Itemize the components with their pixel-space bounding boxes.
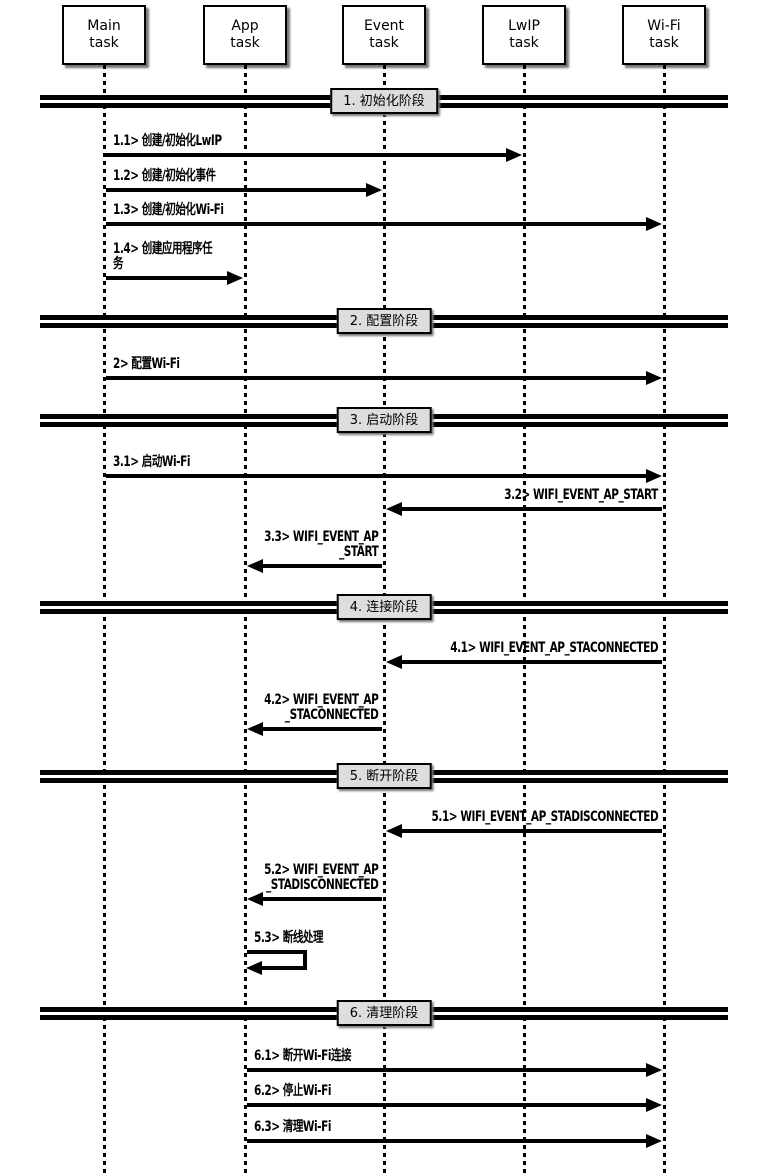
message-arrow-6.3 (247, 1139, 648, 1143)
message-arrowhead-3.2 (386, 502, 402, 516)
message-label-3.2: 3.2> WIFI_EVENT_AP_START (504, 488, 658, 503)
message-arrow-1.3 (106, 222, 648, 226)
phase-label-1: 1. 初始化阶段 (330, 88, 438, 114)
phase-label-6: 6. 清理阶段 (337, 1000, 432, 1026)
phase-label-2: 2. 配置阶段 (337, 308, 432, 334)
message-arrow-1.2 (106, 188, 368, 192)
message-label-1.2: 1.2> 创建/初始化事件 (113, 169, 216, 184)
actor-header-main: Main task (62, 5, 146, 65)
message-arrow-4.1 (400, 660, 662, 664)
message-arrowhead-1.3 (646, 217, 662, 231)
message-label-6.3: 6.3> 清理Wi-Fi (254, 1120, 331, 1135)
message-arrowhead-6.1 (646, 1063, 662, 1077)
message-label-3.1: 3.1> 启动Wi-Fi (113, 455, 190, 470)
message-arrow-5.3 (259, 966, 307, 970)
message-arrowhead-4.1 (386, 655, 402, 669)
message-arrow-1.4 (106, 276, 229, 280)
message-label-2: 2> 配置Wi-Fi (113, 357, 180, 372)
message-arrowhead-6.3 (646, 1134, 662, 1148)
message-label-6.1: 6.1> 断开Wi-Fi连接 (254, 1049, 351, 1064)
message-arrow-3.3 (261, 564, 382, 568)
message-arrow-3.2 (400, 507, 662, 511)
message-arrowhead-5.2 (247, 892, 263, 906)
message-arrowhead-2 (646, 371, 662, 385)
message-label-4.1: 4.1> WIFI_EVENT_AP_STACONNECTED (450, 641, 658, 656)
message-arrow-2 (106, 376, 648, 380)
message-arrowhead-3.1 (646, 469, 662, 483)
message-arrowhead-6.2 (646, 1098, 662, 1112)
message-arrowhead-3.3 (247, 559, 263, 573)
message-arrowhead-1.4 (227, 271, 243, 285)
message-label-5.3: 5.3> 断线处理 (254, 931, 323, 946)
message-arrow-5.3 (247, 950, 307, 954)
phase-label-5: 5. 断开阶段 (337, 763, 432, 789)
message-label-5.1: 5.1> WIFI_EVENT_AP_STADISCONNECTED (431, 810, 658, 825)
sequence-diagram: 1. 初始化阶段2. 配置阶段3. 启动阶段4. 连接阶段5. 断开阶段6. 清… (0, 0, 768, 1176)
message-arrow-5.2 (261, 897, 382, 901)
message-arrow-6.1 (247, 1068, 648, 1072)
message-arrowhead-4.2 (247, 722, 263, 736)
actor-header-lwip: LwIP task (482, 5, 566, 65)
message-label-1.4: 1.4> 创建应用程序任 务 (113, 242, 212, 272)
phase-label-4: 4. 连接阶段 (337, 594, 432, 620)
phase-label-3: 3. 启动阶段 (337, 407, 432, 433)
message-arrowhead-5.3 (246, 961, 262, 975)
message-label-1.1: 1.1> 创建/初始化LwIP (113, 134, 222, 149)
message-arrowhead-1.2 (366, 183, 382, 197)
message-label-6.2: 6.2> 停止Wi-Fi (254, 1084, 331, 1099)
message-label-4.2: 4.2> WIFI_EVENT_AP _STACONNECTED (264, 693, 378, 723)
message-arrowhead-1.1 (506, 148, 522, 162)
message-arrow-5.1 (400, 829, 662, 833)
message-label-5.2: 5.2> WIFI_EVENT_AP _STADISCONNECTED (264, 863, 378, 893)
message-label-3.3: 3.3> WIFI_EVENT_AP _START (264, 530, 378, 560)
message-arrow-3.1 (106, 474, 648, 478)
message-arrow-1.1 (106, 153, 508, 157)
message-arrow-6.2 (247, 1103, 648, 1107)
actor-header-wifi: Wi-Fi task (622, 5, 706, 65)
message-label-1.3: 1.3> 创建/初始化Wi-Fi (113, 203, 224, 218)
message-arrowhead-5.1 (386, 824, 402, 838)
message-arrow-4.2 (261, 727, 382, 731)
actor-header-event: Event task (342, 5, 426, 65)
actor-header-app: App task (203, 5, 287, 65)
